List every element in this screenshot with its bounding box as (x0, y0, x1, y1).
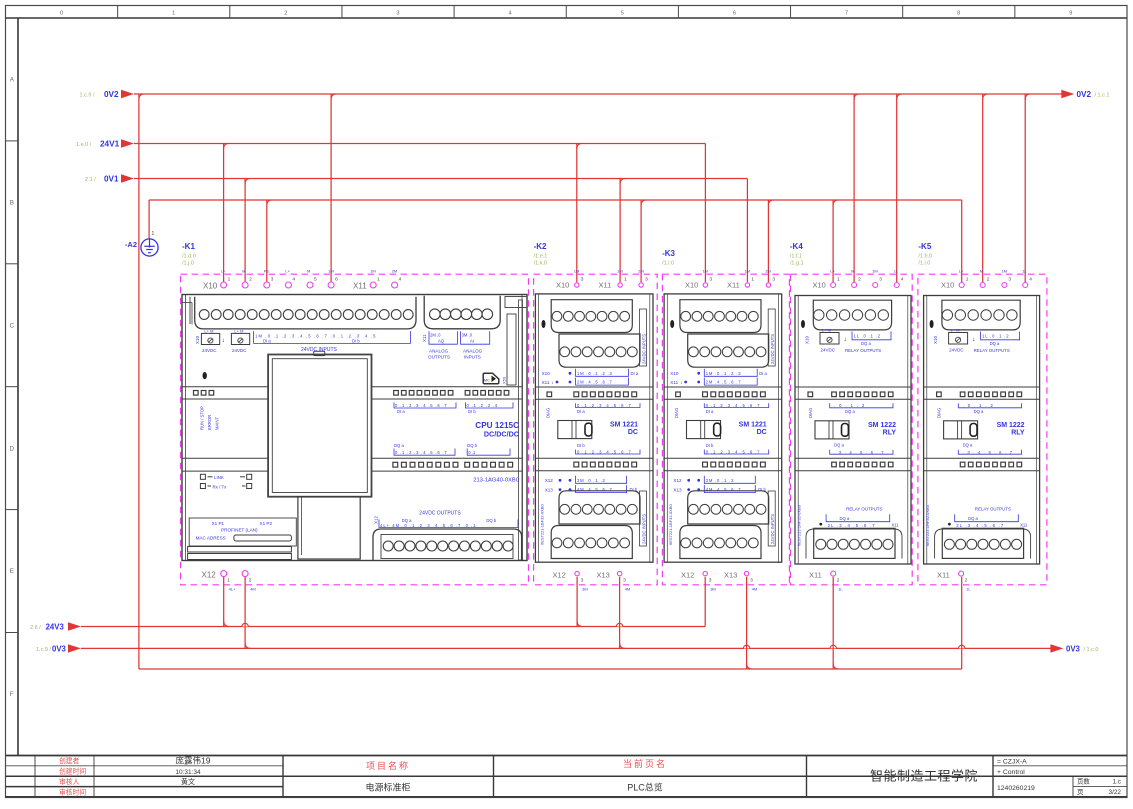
svg-text:Rx / Tx: Rx / Tx (213, 484, 228, 489)
svg-text:3: 3 (750, 578, 753, 584)
svg-text:2M: 2M (765, 269, 771, 274)
svg-text:. 3 . 4 . 5 . 6 . 7: . 3 . 4 . 5 . 6 . 7 (963, 450, 1014, 455)
svg-text:2M: 2M (392, 269, 398, 274)
svg-text:6ES7222-1HF32-0XB0: 6ES7222-1HF32-0XB0 (797, 504, 802, 546)
svg-text:0 .1 .2 .3 .4 .5 .6 .7: 0 .1 .2 .3 .4 .5 .6 .7 (395, 403, 448, 408)
svg-text:2M: 2M (638, 269, 644, 274)
svg-text:X13: X13 (597, 570, 610, 579)
svg-text:ANALOG: ANALOG (429, 348, 449, 353)
svg-text:↓: ↓ (222, 337, 225, 344)
svg-text:X11: X11 (809, 570, 822, 579)
svg-text:L+: L+ (285, 269, 290, 274)
svg-text:0V3: 0V3 (52, 645, 67, 654)
svg-text:X13: X13 (673, 487, 682, 492)
svg-text:1: 1 (172, 11, 175, 17)
svg-text:创建者: 创建者 (59, 756, 80, 765)
svg-text:/1.j.0: /1.j.0 (182, 260, 194, 266)
svg-text:1M .0 .1 .2 .3: 1M .0 .1 .2 .3 (577, 371, 613, 376)
svg-text:↓: ↓ (844, 336, 847, 343)
svg-text:DI a: DI a (577, 409, 585, 414)
svg-text:X12: X12 (681, 570, 694, 579)
svg-text:1M: 1M (328, 269, 334, 274)
svg-text:DC/DC/DC: DC/DC/DC (484, 430, 519, 439)
svg-text:DQ a: DQ a (861, 341, 871, 346)
svg-text:DQ a: DQ a (974, 409, 984, 414)
svg-text:DC: DC (628, 429, 638, 436)
svg-text:4: 4 (901, 277, 904, 283)
svg-text:电源标准柜: 电源标准柜 (365, 781, 410, 792)
svg-text:L+: L+ (959, 269, 964, 274)
svg-text:X10: X10 (805, 335, 810, 344)
svg-text:3: 3 (772, 277, 775, 283)
svg-text:DI b: DI b (352, 339, 360, 344)
svg-text:5: 5 (621, 11, 624, 17)
svg-text:X12: X12 (545, 478, 554, 483)
svg-text:3: 3 (879, 277, 882, 283)
svg-text:/1.h.0: /1.h.0 (918, 253, 932, 259)
svg-text:4L+ 4M .0 .1 .2 .3 .4 .5 .6 .: 4L+ 4M .0 .1 .2 .3 .4 .5 .6 .7 .0 .1 (380, 523, 477, 528)
svg-text:4M: 4M (752, 587, 758, 592)
svg-text:1L .0 .1 .2: 1L .0 .1 .2 (982, 333, 1009, 338)
svg-text:1.c.9 /: 1.c.9 / (36, 647, 51, 653)
svg-text:SM 1221: SM 1221 (610, 422, 638, 429)
svg-text:DQ b: DQ b (467, 443, 477, 448)
svg-text:X11: X11 (937, 570, 950, 579)
svg-text:DQ a: DQ a (394, 443, 404, 448)
svg-text:DQ a: DQ a (968, 516, 978, 521)
svg-text:PROFINET (LAN): PROFINET (LAN) (221, 528, 258, 533)
svg-text:RELAY OUTPUTS: RELAY OUTPUTS (845, 348, 881, 353)
svg-text:1.c.9 /: 1.c.9 / (80, 93, 95, 99)
svg-text:2.6 /: 2.6 / (30, 625, 41, 631)
svg-text:2M .4 .5 .6 .7: 2M .4 .5 .6 .7 (706, 380, 742, 385)
svg-text:24V1: 24V1 (100, 140, 120, 149)
svg-text:B: B (10, 200, 14, 207)
svg-text:X10: X10 (195, 335, 200, 344)
svg-text:X12: X12 (553, 570, 566, 579)
svg-text:/ 1.c.1: / 1.c.1 (1095, 93, 1110, 99)
svg-text:2: 2 (249, 578, 252, 584)
svg-text:审核人: 审核人 (59, 777, 80, 786)
svg-text:2L .3 .4 .5 .6 .7: 2L .3 .4 .5 .6 .7 (828, 523, 876, 528)
svg-text:-K2: -K2 (534, 242, 547, 251)
svg-text:PE: PE (264, 269, 270, 274)
svg-text:OUTPUTS: OUTPUTS (428, 355, 450, 360)
svg-text:↓: ↓ (552, 380, 554, 385)
svg-text:6ES7221-1BF32-0XB0: 6ES7221-1BF32-0XB0 (668, 504, 673, 545)
svg-text:9: 9 (1069, 11, 1072, 17)
svg-text:24VDC INPUTS: 24VDC INPUTS (770, 334, 775, 364)
svg-text:0 .1: 0 .1 (468, 450, 476, 455)
svg-text:. 0 . 1 . 2: . 0 . 1 . 2 (834, 403, 866, 408)
svg-text:1L: 1L (838, 587, 843, 592)
svg-text:X12: X12 (673, 478, 682, 483)
svg-text:X10: X10 (941, 280, 954, 289)
svg-text:L+ M: L+ M (204, 328, 213, 333)
svg-text:X1 P2: X1 P2 (260, 521, 273, 526)
svg-text:/1.d.0: /1.d.0 (182, 253, 196, 259)
svg-text:2M .0: 2M .0 (430, 333, 441, 338)
svg-text:X10: X10 (556, 280, 569, 289)
svg-text:= CZJX-A: = CZJX-A (997, 758, 1027, 765)
svg-text:3M: 3M (710, 587, 716, 592)
svg-text:M: M (980, 269, 983, 274)
svg-text:/1.g.1: /1.g.1 (790, 260, 804, 266)
svg-text:3M .0: 3M .0 (462, 333, 473, 338)
svg-text:1M: 1M (370, 269, 376, 274)
svg-text:X10: X10 (203, 281, 218, 290)
svg-text:. 0 . 1 . 2: . 0 . 1 . 2 (963, 403, 995, 408)
svg-text:3M .0 .1 .2: 3M .0 .1 .2 (577, 478, 606, 483)
svg-text:3: 3 (709, 578, 712, 584)
svg-text:1M: 1M (702, 269, 708, 274)
svg-text:24VDC INPUTS: 24VDC INPUTS (770, 514, 775, 544)
svg-text:X12: X12 (374, 515, 379, 524)
svg-text:-K3: -K3 (662, 249, 675, 258)
svg-text:L+ M: L+ M (234, 328, 243, 333)
svg-text:-A2: -A2 (125, 240, 137, 249)
svg-text:DIAG: DIAG (808, 408, 813, 418)
svg-text:1: 1 (228, 277, 231, 283)
svg-text:3: 3 (623, 578, 626, 584)
svg-text:DQ b: DQ b (486, 518, 496, 523)
svg-text:1M .0 .1 .2 .3: 1M .0 .1 .2 .3 (706, 371, 742, 376)
svg-text:2: 2 (249, 277, 252, 283)
svg-text:0: 0 (60, 11, 63, 17)
svg-text:X11: X11 (353, 281, 367, 290)
svg-text:24VDC: 24VDC (202, 348, 217, 353)
svg-text:2: 2 (284, 11, 287, 17)
svg-text:DI a: DI a (397, 409, 405, 414)
svg-text:3M: 3M (582, 587, 588, 592)
svg-text:/1.f.1: /1.f.1 (790, 253, 802, 259)
svg-text:3/22: 3/22 (1109, 789, 1122, 796)
svg-text:1240260219: 1240260219 (997, 785, 1035, 792)
svg-text:-K1: -K1 (182, 242, 195, 251)
svg-text:AI: AI (470, 339, 474, 344)
svg-text:1: 1 (227, 578, 230, 584)
svg-text:2: 2 (858, 277, 861, 283)
svg-text:24VDC: 24VDC (232, 348, 247, 353)
svg-text:黄文: 黄文 (181, 777, 195, 786)
svg-text:24VDC INPUTS: 24VDC INPUTS (301, 347, 338, 353)
svg-text:4: 4 (292, 277, 295, 283)
svg-text:-K4: -K4 (790, 242, 803, 251)
svg-text:页数: 页数 (1077, 777, 1090, 786)
svg-text:X1 P1: X1 P1 (212, 521, 225, 526)
svg-text:/1.i.0: /1.i.0 (918, 260, 930, 266)
svg-text:1M: 1M (744, 269, 750, 274)
svg-text:2M .4 .5 .6 .7: 2M .4 .5 .6 .7 (577, 380, 613, 385)
svg-text:24VDC: 24VDC (821, 348, 836, 353)
svg-text:X11: X11 (599, 280, 612, 289)
svg-text:M: M (851, 269, 854, 274)
svg-text:DI a: DI a (706, 409, 714, 414)
svg-text:1L .0 .1 .2: 1L .0 .1 .2 (854, 333, 881, 338)
svg-text:0V2: 0V2 (104, 90, 119, 99)
svg-text:X11: X11 (422, 334, 427, 342)
svg-text:+ Control: + Control (997, 769, 1025, 776)
svg-text:创建时间: 创建时间 (59, 767, 86, 776)
svg-text:ERROR: ERROR (207, 415, 212, 430)
svg-text:ANALOG: ANALOG (463, 348, 483, 353)
svg-text:1: 1 (624, 277, 627, 283)
svg-text:RELAY OUTPUTS: RELAY OUTPUTS (974, 348, 1010, 353)
svg-text:C: C (10, 322, 15, 329)
svg-text:RLY: RLY (883, 430, 897, 437)
svg-text:X13: X13 (545, 487, 554, 492)
svg-text:1: 1 (966, 277, 969, 283)
svg-text:0 .1 .2 .3 .4: 0 .1 .2 .3 .4 (467, 403, 498, 408)
svg-text:PLC总览: PLC总览 (627, 782, 663, 793)
svg-text:3: 3 (645, 277, 648, 283)
svg-text:24VDC OUTPUTS: 24VDC OUTPUTS (419, 511, 461, 517)
svg-text:↓: ↓ (972, 336, 975, 343)
svg-text:1.e.0 /: 1.e.0 / (76, 142, 92, 148)
svg-text:RELAY OUTPUTS: RELAY OUTPUTS (975, 506, 1011, 511)
svg-text:X10: X10 (813, 280, 826, 289)
svg-text:6ES7222-1HF32-0XB0: 6ES7222-1HF32-0XB0 (925, 504, 930, 546)
svg-text:智能制造工程学院: 智能制造工程学院 (870, 769, 978, 784)
svg-text:DQ a: DQ a (963, 443, 973, 448)
svg-text:RUN / STOP: RUN / STOP (200, 406, 205, 430)
svg-text:10:31:34: 10:31:34 (175, 769, 201, 776)
svg-text:↓: ↓ (680, 380, 682, 385)
svg-text:1M: 1M (617, 269, 623, 274)
svg-text:DI a: DI a (759, 371, 767, 376)
svg-text:L+: L+ (221, 269, 226, 274)
svg-text:L+ M: L+ M (822, 328, 831, 333)
svg-text:1M: 1M (1001, 269, 1007, 274)
svg-text:X11: X11 (670, 380, 678, 385)
svg-text:6ES7221-1BF32-0XB0: 6ES7221-1BF32-0XB0 (540, 504, 545, 545)
svg-text:0V3: 0V3 (1066, 645, 1081, 654)
svg-text:L+ M: L+ M (951, 328, 960, 333)
svg-text:24VDC INPUTS: 24VDC INPUTS (642, 514, 647, 544)
svg-text:DQ a: DQ a (834, 443, 844, 448)
svg-text:X10: X10 (933, 335, 938, 344)
svg-text:D: D (10, 445, 15, 452)
svg-text:DI b: DI b (706, 443, 714, 448)
svg-text:DQ a: DQ a (840, 516, 850, 521)
svg-text:1L: 1L (1022, 269, 1027, 274)
svg-text:项目名称: 项目名称 (366, 760, 410, 771)
svg-text:X50: X50 (502, 376, 507, 384)
svg-text:-K5: -K5 (918, 242, 931, 251)
svg-text:3: 3 (1008, 277, 1011, 283)
svg-text:1: 1 (751, 277, 754, 283)
svg-text:MAINT: MAINT (215, 417, 220, 430)
svg-text:SM 1221: SM 1221 (739, 422, 767, 429)
svg-text:24VDC INPUTS: 24VDC INPUTS (642, 334, 647, 364)
svg-text:1: 1 (377, 277, 380, 283)
svg-text:3: 3 (581, 277, 584, 283)
svg-text:0 .1 .2 .3 .4 .5 .6 .7: 0 .1 .2 .3 .4 .5 .6 .7 (706, 403, 761, 408)
svg-text:DI a: DI a (631, 371, 639, 376)
svg-text:1: 1 (837, 277, 840, 283)
svg-text:1L: 1L (966, 587, 971, 592)
svg-text:4: 4 (399, 277, 402, 283)
svg-text:0 .1 .2 .3 .4 .5 .6 .7: 0 .1 .2 .3 .4 .5 .6 .7 (395, 450, 448, 455)
svg-text:DQ a: DQ a (845, 409, 855, 414)
svg-text:X10: X10 (685, 280, 698, 289)
svg-text:2: 2 (965, 578, 968, 584)
svg-text:/1.l.0: /1.l.0 (662, 260, 674, 266)
svg-text:4L+: 4L+ (229, 587, 236, 592)
svg-text:6: 6 (733, 11, 736, 17)
svg-text:2.1 /: 2.1 / (85, 177, 96, 183)
svg-text:MAC ADRESS: MAC ADRESS (196, 536, 226, 541)
svg-text:RELAY OUTPUTS: RELAY OUTPUTS (846, 506, 882, 511)
svg-text:DIAG: DIAG (937, 408, 942, 418)
svg-text:E: E (10, 568, 14, 575)
svg-text:M: M (242, 269, 245, 274)
svg-text:3: 3 (581, 578, 584, 584)
svg-text:213-1AG40-0XB0: 213-1AG40-0XB0 (473, 478, 519, 484)
svg-text:DC: DC (757, 429, 767, 436)
svg-text:4M: 4M (250, 587, 256, 592)
svg-text:庞露伟19: 庞露伟19 (176, 756, 211, 766)
svg-text:X13: X13 (724, 570, 737, 579)
svg-text:1L: 1L (894, 269, 899, 274)
svg-text:1M: 1M (574, 269, 580, 274)
svg-text:X12: X12 (202, 570, 217, 579)
svg-text:M: M (307, 269, 310, 274)
svg-text:24VDC: 24VDC (949, 348, 964, 353)
svg-text:/1.e.1: /1.e.1 (534, 253, 548, 259)
svg-text:4: 4 (509, 11, 512, 17)
svg-text:审核时间: 审核时间 (59, 787, 86, 796)
svg-text:0V1: 0V1 (104, 175, 119, 184)
svg-text:当前页名: 当前页名 (623, 758, 667, 769)
svg-text:RLY: RLY (1011, 430, 1025, 437)
svg-text:3M .0 .1 .2: 3M .0 .1 .2 (706, 478, 735, 483)
svg-text:SM 1222: SM 1222 (997, 422, 1025, 429)
svg-text:DQ a: DQ a (990, 341, 1000, 346)
svg-text:/ 1.c.0: / 1.c.0 (1084, 647, 1099, 653)
svg-text:AQ: AQ (438, 339, 445, 344)
svg-text:F: F (10, 691, 14, 698)
svg-text:4M: 4M (625, 587, 631, 592)
svg-text:X11: X11 (727, 280, 740, 289)
svg-text:LINK: LINK (214, 475, 224, 480)
svg-text:X11: X11 (1020, 522, 1028, 527)
svg-text:L+: L+ (830, 269, 835, 274)
svg-text:2: 2 (987, 277, 990, 283)
svg-text:3: 3 (271, 277, 274, 283)
svg-text:3: 3 (396, 11, 399, 17)
svg-text:X10: X10 (670, 371, 679, 376)
svg-text:2: 2 (837, 578, 840, 584)
svg-text:/1.k.0: /1.k.0 (534, 260, 547, 266)
svg-text:MC: MC (484, 378, 490, 383)
svg-text:DI b: DI b (468, 409, 476, 414)
svg-text:8: 8 (957, 11, 960, 17)
svg-text:1M: 1M (872, 269, 878, 274)
svg-text:0 .1 .2 .3 .4 .5 .6 .7: 0 .1 .2 .3 .4 .5 .6 .7 (577, 450, 632, 455)
svg-text:2L .3 .4 .5 .6 .7: 2L .3 .4 .5 .6 .7 (956, 523, 1004, 528)
svg-text:DIAG: DIAG (546, 408, 551, 418)
svg-text:0V2: 0V2 (1077, 90, 1092, 99)
svg-text:6: 6 (335, 277, 338, 283)
svg-text:24V3: 24V3 (46, 623, 65, 632)
svg-text:3: 3 (709, 277, 712, 283)
svg-text:DIAG: DIAG (674, 408, 679, 418)
svg-text:DI a: DI a (263, 339, 271, 344)
svg-text:0 .1 .2 .3 .4 .5 .6 .7: 0 .1 .2 .3 .4 .5 .6 .7 (706, 450, 761, 455)
svg-text:0 .1 .2 .3 .4 .5 .6 .7: 0 .1 .2 .3 .4 .5 .6 .7 (577, 403, 632, 408)
svg-text:页: 页 (1077, 788, 1083, 796)
svg-text:X10: X10 (542, 371, 551, 376)
svg-text:SM 1222: SM 1222 (868, 422, 896, 429)
svg-text:DI b: DI b (577, 443, 585, 448)
svg-text:1: 1 (152, 231, 155, 237)
svg-text:5: 5 (314, 277, 317, 283)
svg-text:X11: X11 (892, 522, 900, 527)
svg-text:. 3 . 4 . 5 . 6 . 7: . 3 . 4 . 5 . 6 . 7 (834, 450, 885, 455)
svg-text:1.c: 1.c (1112, 779, 1121, 786)
svg-text:4: 4 (1029, 277, 1032, 283)
svg-text:X11: X11 (542, 380, 550, 385)
svg-text:INPUTS: INPUTS (464, 355, 481, 360)
svg-text:7: 7 (845, 11, 848, 17)
